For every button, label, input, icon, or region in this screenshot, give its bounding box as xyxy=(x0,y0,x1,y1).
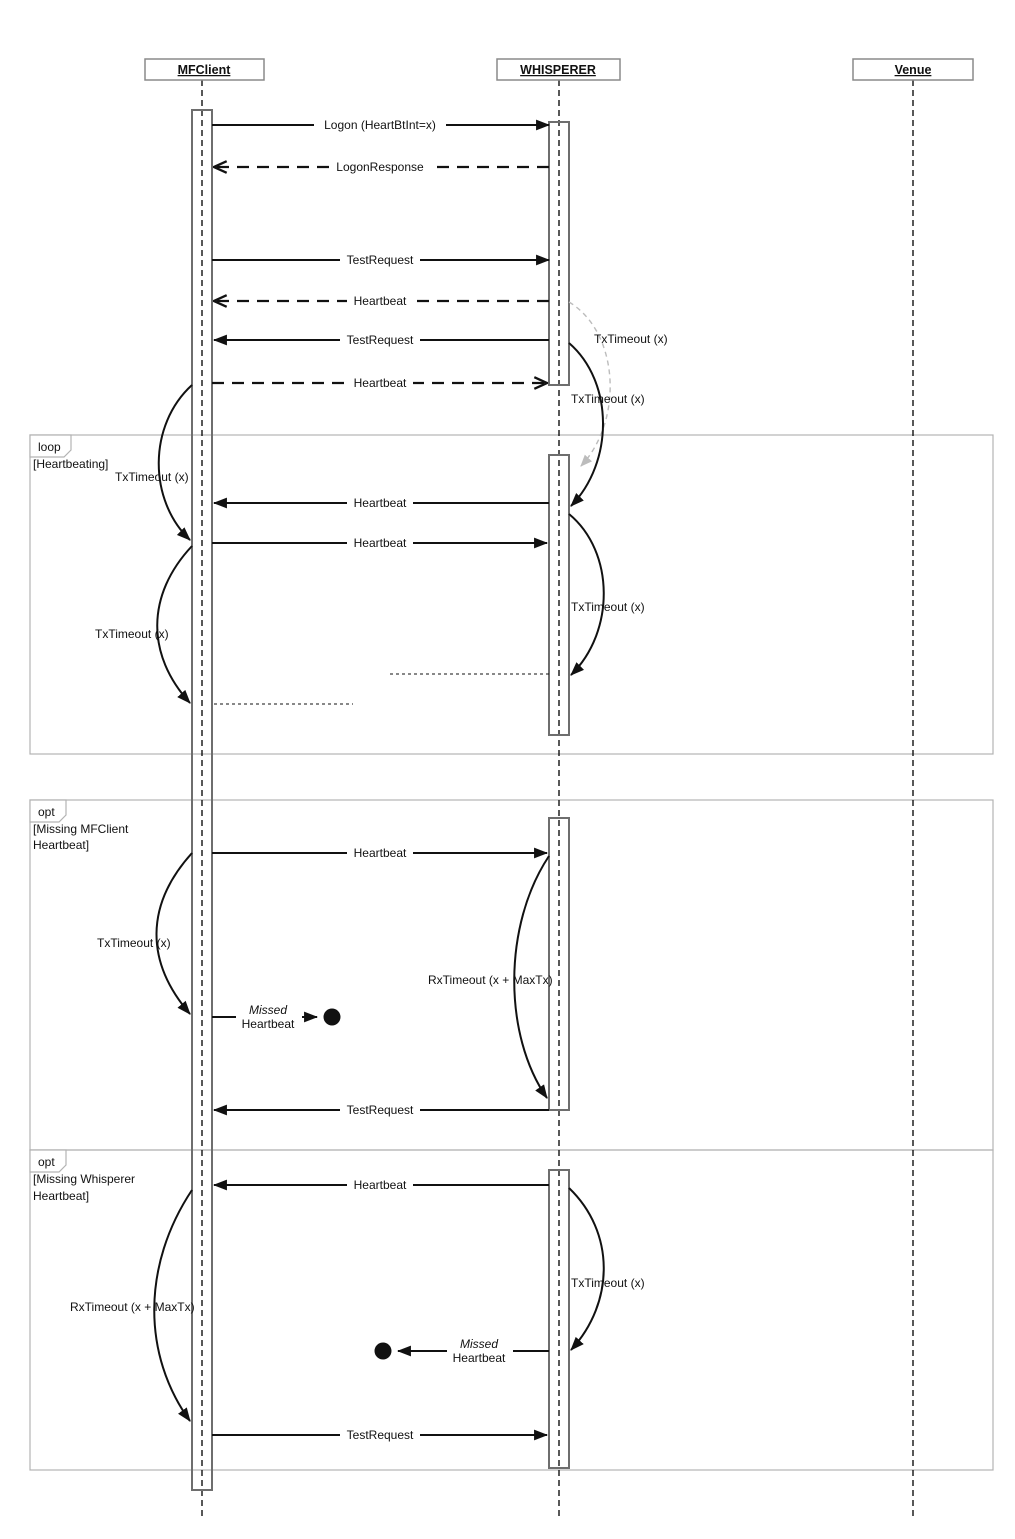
message-heartbeat-loop-2: Heartbeat xyxy=(212,536,547,550)
message-label: Heartbeat xyxy=(354,536,407,550)
message-testrequest-2: TestRequest xyxy=(214,333,549,347)
message-heartbeat-opt1: Heartbeat xyxy=(212,846,547,860)
opt1-guard-line2: Heartbeat] xyxy=(33,838,89,852)
opt1-guard-line1: [Missing MFClient xyxy=(33,822,129,836)
message-label: TestRequest xyxy=(347,333,414,347)
participant-mfclient: MFClient xyxy=(145,59,264,80)
message-label: TestRequest xyxy=(347,1428,414,1442)
message-testrequest-opt2: TestRequest xyxy=(212,1428,547,1442)
rx-timeout-label-opt2: RxTimeout (x + MaxTx) xyxy=(70,1300,195,1314)
tx-timeout-label-mfclient-2: TxTimeout (x) xyxy=(95,627,169,641)
message-label: Heartbeat xyxy=(354,496,407,510)
message-label: Logon (HeartBtInt=x) xyxy=(324,118,436,132)
lost-message-label-line1: Missed xyxy=(249,1003,287,1017)
tx-timeout-label-opt1: TxTimeout (x) xyxy=(97,936,171,950)
lost-message-endpoint xyxy=(324,1009,341,1026)
lost-message-label-line1: Missed xyxy=(460,1337,498,1351)
tx-timeout-label-whisperer-1: TxTimeout (x) xyxy=(571,392,645,406)
lost-message-missed-heartbeat-opt2: Missed Heartbeat xyxy=(375,1337,550,1365)
message-label: TestRequest xyxy=(347,253,414,267)
participant-whisperer: WHISPERER xyxy=(497,59,620,80)
message-label: Heartbeat xyxy=(354,1178,407,1192)
opt1-operator-label: opt xyxy=(38,805,55,819)
message-testrequest-1: TestRequest xyxy=(212,253,549,267)
message-label: LogonResponse xyxy=(336,160,424,174)
participant-name: Venue xyxy=(895,63,932,77)
opt2-guard-line2: Heartbeat] xyxy=(33,1189,89,1203)
tx-timeout-curve-mfclient-2 xyxy=(157,546,192,703)
lost-message-endpoint xyxy=(375,1343,392,1360)
tx-timeout-curve-opt2 xyxy=(569,1188,604,1350)
message-heartbeat-loop-1: Heartbeat xyxy=(214,496,549,510)
loop-guard: [Heartbeating] xyxy=(33,457,108,471)
lost-message-missed-heartbeat-opt1: Missed Heartbeat xyxy=(212,1003,341,1031)
participant-venue: Venue xyxy=(853,59,973,80)
tx-timeout-curve-opt1 xyxy=(156,853,192,1014)
message-heartbeat-2: Heartbeat xyxy=(212,376,547,390)
opt2-operator-label: opt xyxy=(38,1155,55,1169)
message-logon-response: LogonResponse xyxy=(214,160,549,174)
message-label: TestRequest xyxy=(347,1103,414,1117)
lost-message-label-line2: Heartbeat xyxy=(242,1017,295,1031)
tx-timeout-ghost-curve xyxy=(569,302,610,466)
tx-timeout-curve-mfclient-1 xyxy=(159,385,192,540)
message-heartbeat-opt2: Heartbeat xyxy=(214,1178,549,1192)
tx-timeout-curve-whisperer-1 xyxy=(569,343,603,506)
tx-timeout-curve-whisperer-2 xyxy=(569,514,604,675)
participant-name: MFClient xyxy=(178,63,232,77)
rx-timeout-label-opt1: RxTimeout (x + MaxTx) xyxy=(428,973,553,987)
loop-operator-label: loop xyxy=(38,440,61,454)
diagram-svg: loop [Heartbeating] opt [Missing MFClien… xyxy=(0,0,1015,1539)
participant-name: WHISPERER xyxy=(520,63,596,77)
message-testrequest-opt1: TestRequest xyxy=(214,1103,549,1117)
tx-timeout-label-mfclient-1: TxTimeout (x) xyxy=(115,470,189,484)
message-logon: Logon (HeartBtInt=x) xyxy=(212,118,549,132)
message-heartbeat-1: Heartbeat xyxy=(214,294,549,308)
tx-timeout-ghost-label: TxTimeout (x) xyxy=(594,332,668,346)
tx-timeout-label-opt2: TxTimeout (x) xyxy=(571,1276,645,1290)
message-label: Heartbeat xyxy=(354,376,407,390)
tx-timeout-label-whisperer-2: TxTimeout (x) xyxy=(571,600,645,614)
opt2-guard-line1: [Missing Whisperer xyxy=(33,1172,135,1186)
message-label: Heartbeat xyxy=(354,846,407,860)
sequence-diagram: loop [Heartbeating] opt [Missing MFClien… xyxy=(0,0,1015,1539)
lost-message-label-line2: Heartbeat xyxy=(453,1351,506,1365)
message-label: Heartbeat xyxy=(354,294,407,308)
